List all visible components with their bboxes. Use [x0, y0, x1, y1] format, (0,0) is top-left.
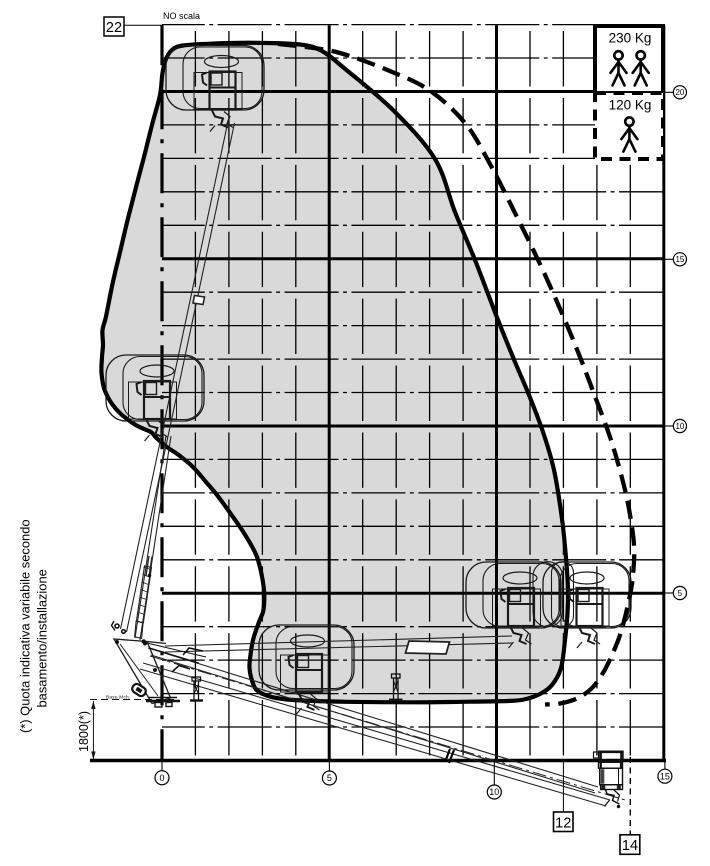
- svg-text:12: 12: [555, 815, 571, 831]
- svg-text:230 Kg: 230 Kg: [609, 31, 652, 46]
- svg-text:(*) Quota indicativa variabile: (*) Quota indicativa variabile secondo: [18, 519, 33, 733]
- svg-text:10: 10: [489, 787, 499, 797]
- svg-text:10: 10: [675, 422, 684, 431]
- svg-text:20: 20: [675, 88, 684, 97]
- svg-text:15: 15: [675, 255, 684, 264]
- svg-text:22: 22: [106, 20, 122, 36]
- svg-text:NO scala: NO scala: [163, 11, 200, 21]
- svg-text:Base Mch.: Base Mch.: [106, 695, 130, 701]
- svg-text:basamento/installazione: basamento/installazione: [35, 569, 50, 707]
- svg-text:5: 5: [327, 773, 332, 783]
- svg-text:120 Kg: 120 Kg: [609, 98, 652, 113]
- svg-text:0: 0: [159, 773, 164, 783]
- svg-text:5: 5: [678, 589, 683, 598]
- svg-text:14: 14: [622, 838, 638, 854]
- svg-text:15: 15: [660, 771, 670, 781]
- svg-text:1800(*): 1800(*): [77, 711, 91, 752]
